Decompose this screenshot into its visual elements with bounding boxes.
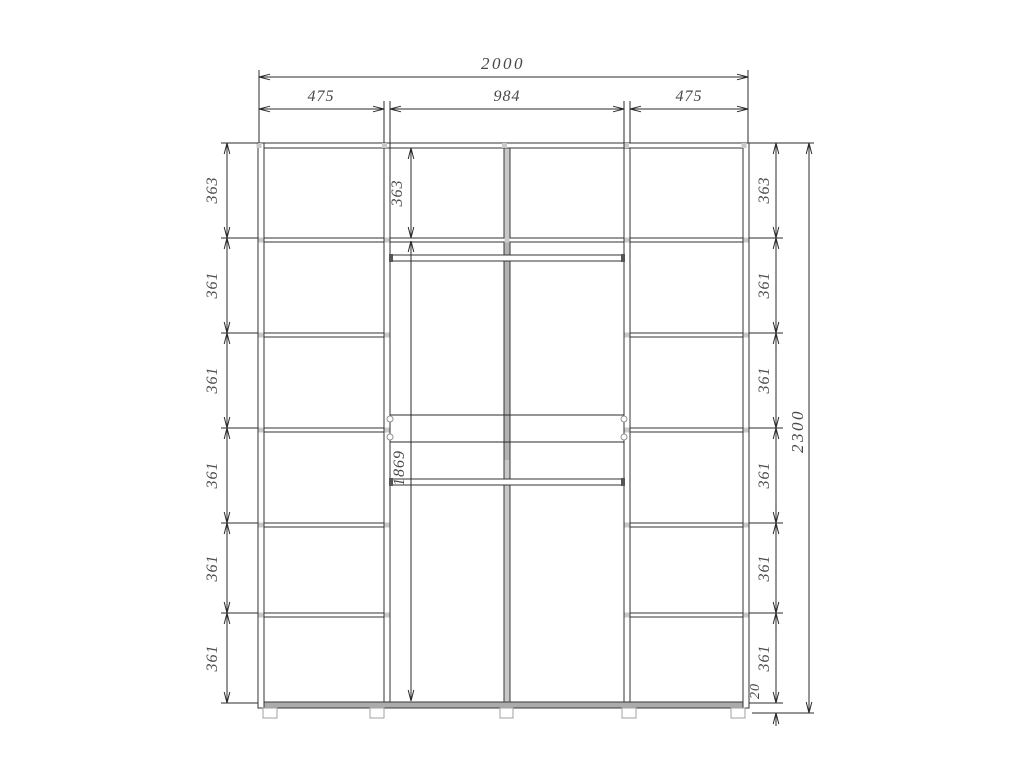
- dim-right-1: 363: [756, 177, 774, 204]
- dim-left-5: 361: [204, 555, 222, 582]
- dim-overall-height: 2300: [788, 409, 808, 453]
- dim-left-4: 361: [204, 462, 222, 489]
- dim-right-4: 361: [756, 462, 774, 489]
- dim-left-2: 361: [204, 272, 222, 299]
- dim-middle-top: 363: [389, 180, 407, 207]
- dim-left-3: 361: [204, 367, 222, 394]
- dim-top-segment-1: 475: [308, 88, 335, 106]
- dim-plinth-height: 20: [748, 683, 764, 699]
- technical-drawing: 2000 475 984 475 363 361 361 361 361 361…: [0, 0, 1024, 768]
- dim-middle-body: 1869: [391, 450, 409, 486]
- dim-right-3: 361: [756, 367, 774, 394]
- dim-right-6: 361: [756, 645, 774, 672]
- dim-top-segment-3: 475: [676, 88, 703, 106]
- cabinet-drawing: [0, 0, 1024, 768]
- dim-right-2: 361: [756, 272, 774, 299]
- dim-overall-width: 2000: [481, 54, 525, 74]
- dim-left-6: 361: [204, 645, 222, 672]
- dim-right-5: 361: [756, 555, 774, 582]
- dim-left-1: 363: [204, 177, 222, 204]
- dim-top-segment-2: 984: [494, 88, 521, 106]
